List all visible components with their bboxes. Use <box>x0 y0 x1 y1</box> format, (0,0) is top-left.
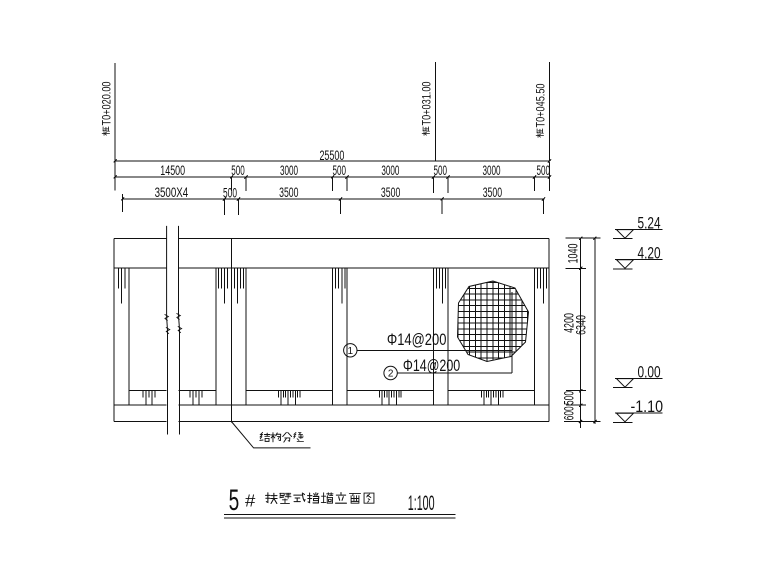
svg-text:T0+031.00: T0+031.00 <box>420 81 434 125</box>
svg-text:1: 1 <box>348 346 354 357</box>
svg-text:14500: 14500 <box>160 162 185 178</box>
svg-text:6340: 6340 <box>572 315 588 335</box>
svg-text:3000: 3000 <box>381 162 399 178</box>
svg-text:5: 5 <box>229 484 240 517</box>
svg-text:3000: 3000 <box>280 162 298 178</box>
svg-text:Φ14@200: Φ14@200 <box>403 357 460 375</box>
svg-text:25500: 25500 <box>319 147 344 163</box>
svg-text:3500: 3500 <box>381 184 401 200</box>
svg-text:5.24: 5.24 <box>638 213 661 232</box>
svg-text:-1.10: -1.10 <box>631 397 664 416</box>
svg-text:1:100: 1:100 <box>408 492 435 515</box>
svg-text:4.20: 4.20 <box>638 244 661 263</box>
svg-text:600: 600 <box>561 406 577 420</box>
svg-text:3500: 3500 <box>279 184 299 200</box>
svg-text:0.00: 0.00 <box>638 362 661 381</box>
svg-text:T0+045.50: T0+045.50 <box>534 83 548 127</box>
svg-text:500: 500 <box>537 162 551 178</box>
svg-text:500: 500 <box>231 162 245 178</box>
svg-text:#: # <box>245 491 256 511</box>
svg-text:500: 500 <box>561 391 577 405</box>
svg-text:500: 500 <box>332 162 346 178</box>
svg-text:2: 2 <box>388 369 394 380</box>
svg-text:Φ14@200: Φ14@200 <box>387 331 447 349</box>
svg-text:3500X4: 3500X4 <box>155 184 189 200</box>
svg-text:1040: 1040 <box>565 243 581 263</box>
svg-text:3500: 3500 <box>483 184 503 200</box>
svg-text:500: 500 <box>223 185 237 201</box>
svg-text:500: 500 <box>433 162 447 178</box>
svg-text:3000: 3000 <box>482 162 500 178</box>
svg-text:T0+020.00: T0+020.00 <box>100 81 114 125</box>
